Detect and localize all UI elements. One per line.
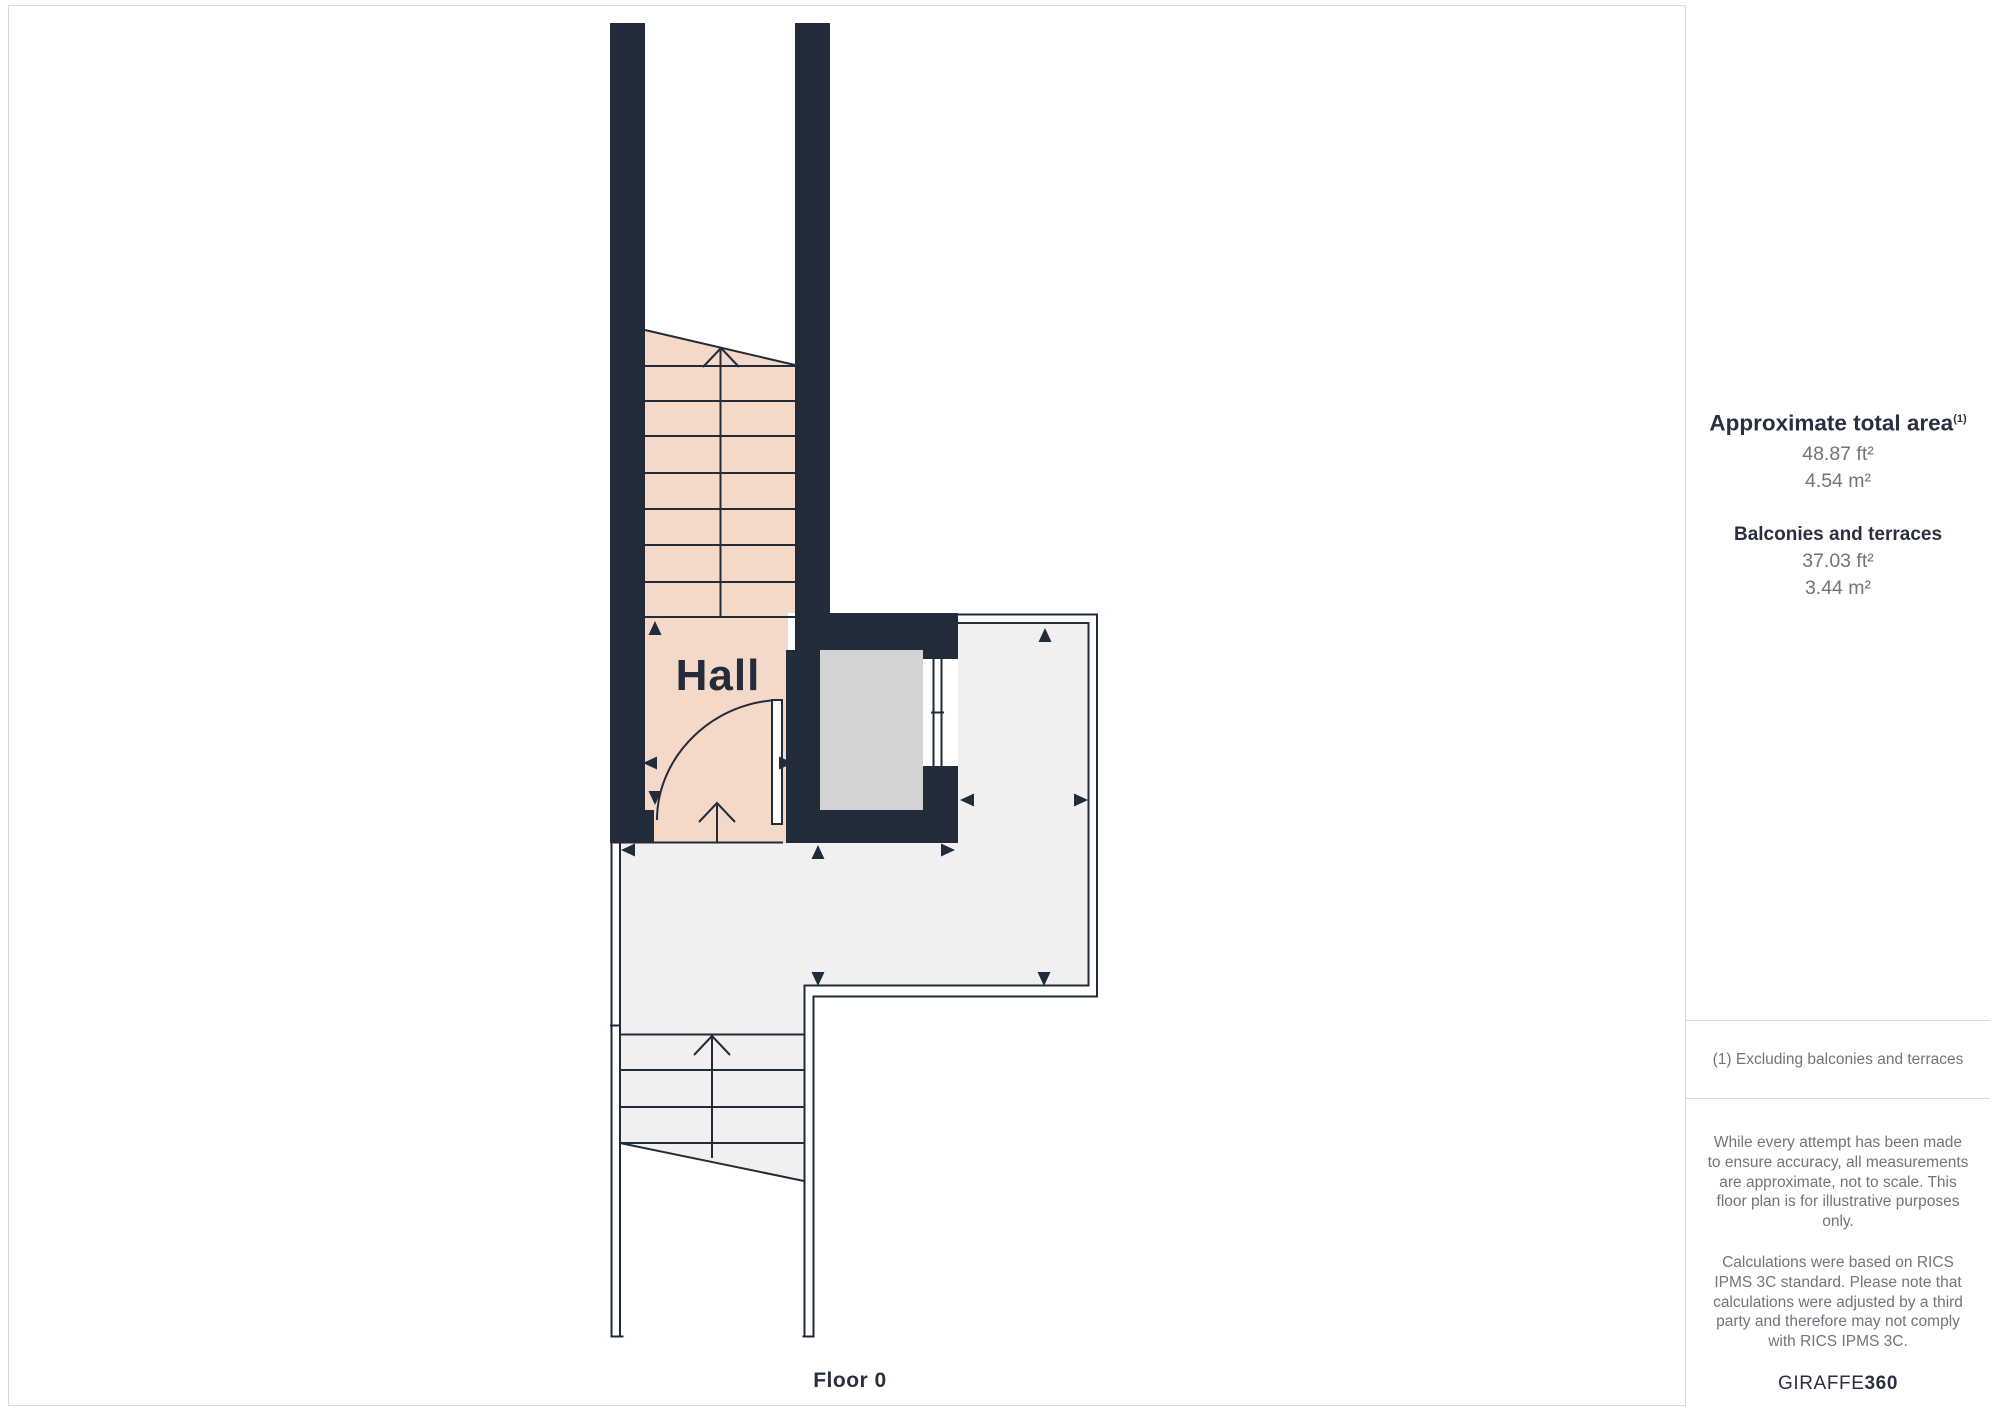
wall-segment-elevator-bottom-stub xyxy=(923,766,958,810)
elevator-window xyxy=(931,658,944,767)
wall-segment-elevator-top xyxy=(795,613,958,650)
room-label: Hall xyxy=(676,651,761,700)
disclaimer-paragraph-2: Calculations were based on RICS IPMS 3C … xyxy=(1707,1253,1969,1352)
brand-name: GIRAFFE xyxy=(1778,1373,1865,1394)
total-area-title-text: Approximate total area xyxy=(1709,411,1953,436)
wall-segment-elevator-bottom xyxy=(786,810,958,843)
balconies-title: Balconies and terraces xyxy=(1686,521,1990,548)
elevator-floor xyxy=(820,650,923,810)
floor-label: Floor 0 xyxy=(780,1369,920,1393)
floor-fills xyxy=(620,330,1088,1180)
wall-segment-elevator-top-stub xyxy=(923,650,958,659)
disclaimer-paragraph-1: While every attempt has been made to ens… xyxy=(1707,1133,1969,1232)
footnote-marker: (1) xyxy=(1953,413,1966,425)
wall-segment-left xyxy=(610,23,645,843)
wall-segment-right xyxy=(795,23,830,613)
total-area-ft: 48.87 ft² xyxy=(1686,441,1990,468)
area-summary-section: Approximate total area(1) 48.87 ft² 4.54… xyxy=(1686,5,1990,1021)
brand-logo: GIRAFFE360 xyxy=(1707,1373,1969,1395)
sidebar: Approximate total area(1) 48.87 ft² 4.54… xyxy=(1685,5,1990,1407)
balconies-ft: 37.03 ft² xyxy=(1686,548,1990,575)
terrace-left-railing xyxy=(610,843,621,1336)
wall-segment-left-jamb xyxy=(645,810,654,843)
disclaimer-section: While every attempt has been made to ens… xyxy=(1686,1099,1990,1395)
brand-suffix: 360 xyxy=(1865,1373,1899,1394)
footnote-section: (1) Excluding balconies and terraces xyxy=(1686,1021,1990,1099)
total-area-title: Approximate total area(1) xyxy=(1686,404,1990,439)
balconies-m: 3.44 m² xyxy=(1686,575,1990,602)
footnote-text: (1) Excluding balconies and terraces xyxy=(1713,1051,1964,1069)
total-area-m: 4.54 m² xyxy=(1686,468,1990,495)
floorplan-page: Hall Floor 0 Approximate total area(1) 4… xyxy=(0,0,2000,1414)
